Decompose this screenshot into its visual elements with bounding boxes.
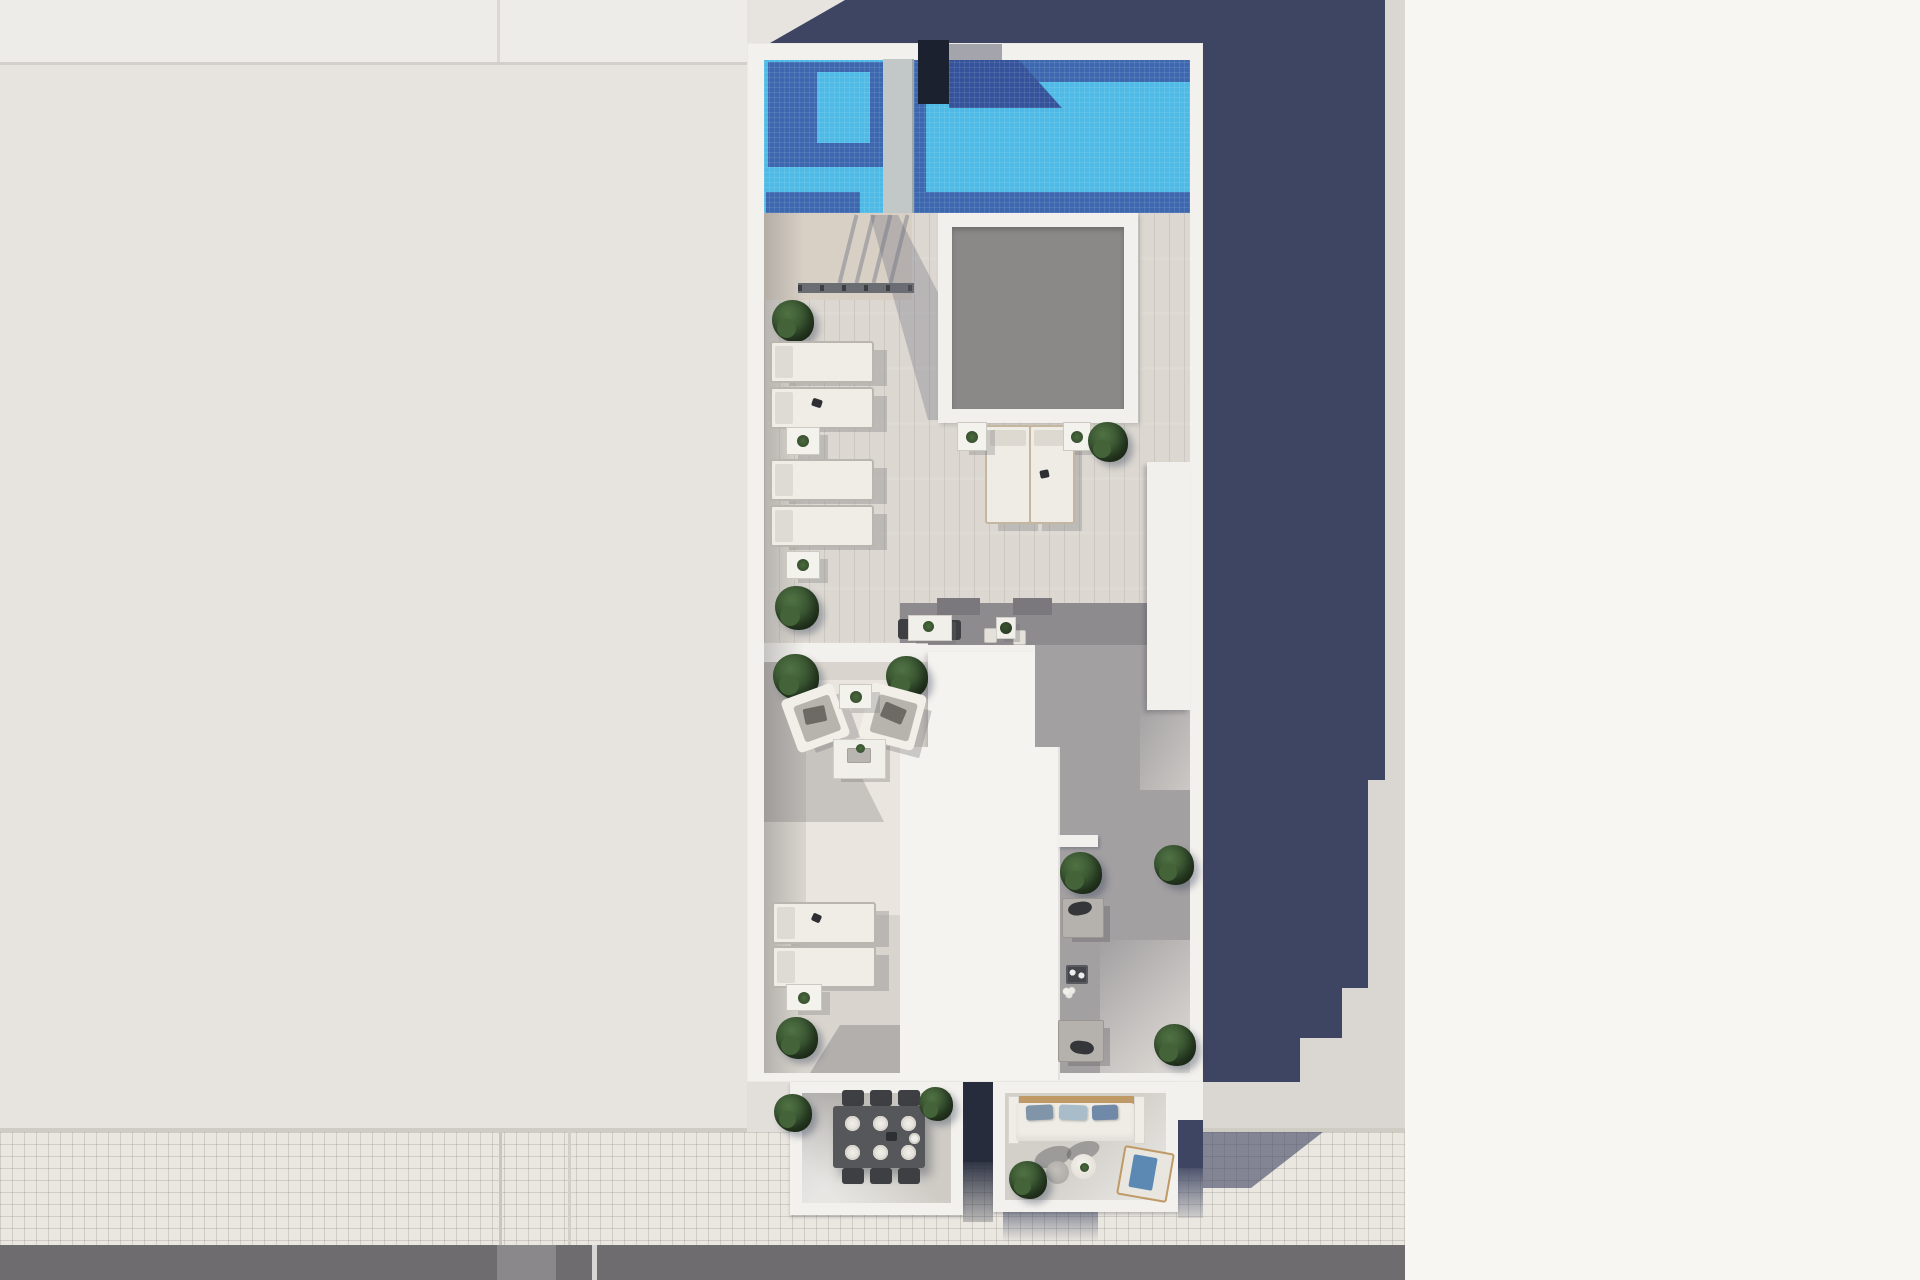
sun-lounger	[770, 505, 874, 547]
pool-bridge-walkway	[883, 59, 914, 213]
dining-chair	[898, 1168, 920, 1184]
bush-terrace	[776, 1017, 818, 1059]
dining-chair	[870, 1168, 892, 1184]
sofa-pillow	[1026, 1104, 1054, 1120]
bush-corridor	[1060, 852, 1102, 894]
road-marking-line	[592, 1245, 597, 1280]
step-shadow	[937, 598, 980, 615]
dining-chair	[842, 1168, 864, 1184]
plate	[873, 1116, 888, 1131]
skylight-glass	[952, 227, 1124, 409]
bush-balcony	[919, 1087, 953, 1121]
sun-lounger	[985, 425, 1031, 524]
facade-notch	[1178, 1082, 1203, 1120]
plate	[873, 1145, 888, 1160]
sunlight-patch	[1140, 700, 1190, 790]
plate	[845, 1116, 860, 1131]
bush-corridor	[1154, 845, 1194, 885]
roof-seam	[497, 0, 500, 62]
side-table-plant	[786, 427, 820, 455]
rooftop-render	[0, 0, 1920, 1280]
side-table-plant	[786, 984, 822, 1011]
side-table-plant	[1063, 422, 1091, 451]
roof-groove-line	[0, 62, 747, 65]
step-shadow	[1013, 598, 1052, 615]
sun-lounger	[770, 387, 874, 429]
balcony-shadow-on-sidewalk	[1003, 1212, 1098, 1242]
sofa-armrest	[1134, 1096, 1145, 1144]
between-balcony-void	[963, 1082, 993, 1162]
plate	[901, 1116, 916, 1131]
side-table-plant	[786, 551, 820, 579]
teapot	[909, 1133, 920, 1144]
bush-walkway	[772, 300, 814, 342]
plate	[845, 1145, 860, 1160]
stair-core-upper-block	[928, 652, 1035, 747]
dining-chair	[898, 1090, 920, 1106]
dining-chair	[870, 1090, 892, 1106]
pool-tile-grid	[764, 60, 1190, 213]
table-item	[886, 1132, 897, 1141]
bush-balcony	[1009, 1161, 1047, 1199]
facade-notch-shadow-fade	[1178, 1168, 1203, 1218]
pouf-plant	[1071, 1154, 1096, 1179]
tea-table	[1066, 965, 1088, 984]
plate	[901, 1145, 916, 1160]
plant-pot	[1000, 622, 1012, 634]
sun-lounger	[772, 946, 876, 988]
neighbor-roof-top-strip	[0, 0, 747, 62]
sun-lounger	[770, 459, 874, 501]
flowers	[1060, 985, 1078, 999]
dining-chair	[842, 1090, 864, 1106]
sidewalk-seam	[499, 1132, 502, 1245]
stair-elevator-core	[900, 747, 1060, 1080]
table-plant	[923, 621, 934, 632]
side-table-plant	[839, 684, 872, 709]
road-marking-stripe	[497, 1245, 556, 1280]
bush-terrace	[775, 586, 819, 630]
parapet-shaded-segment	[949, 44, 1002, 60]
neighbor-roof-right-sunlit	[1405, 0, 1920, 1280]
bush-skylight	[1088, 422, 1128, 462]
pouf	[1046, 1161, 1069, 1184]
side-table-plant	[957, 422, 987, 451]
right-wall-planter-ledge	[1147, 462, 1190, 710]
asphalt-road	[0, 1245, 1405, 1280]
sofa-pillow	[1059, 1105, 1088, 1121]
sun-lounger	[772, 902, 876, 944]
pool-equipment-box	[918, 40, 949, 104]
sofa-pillow	[1092, 1105, 1119, 1121]
bush-balcony	[774, 1094, 812, 1132]
bush-corridor	[1154, 1024, 1196, 1066]
sun-lounger	[770, 341, 874, 383]
table-plant	[856, 744, 865, 753]
planter-ledge	[1058, 835, 1098, 847]
facade-notch-shadow	[1178, 1120, 1203, 1168]
void-shadow-fade	[963, 1162, 993, 1222]
sidewalk-seam	[568, 1132, 571, 1245]
